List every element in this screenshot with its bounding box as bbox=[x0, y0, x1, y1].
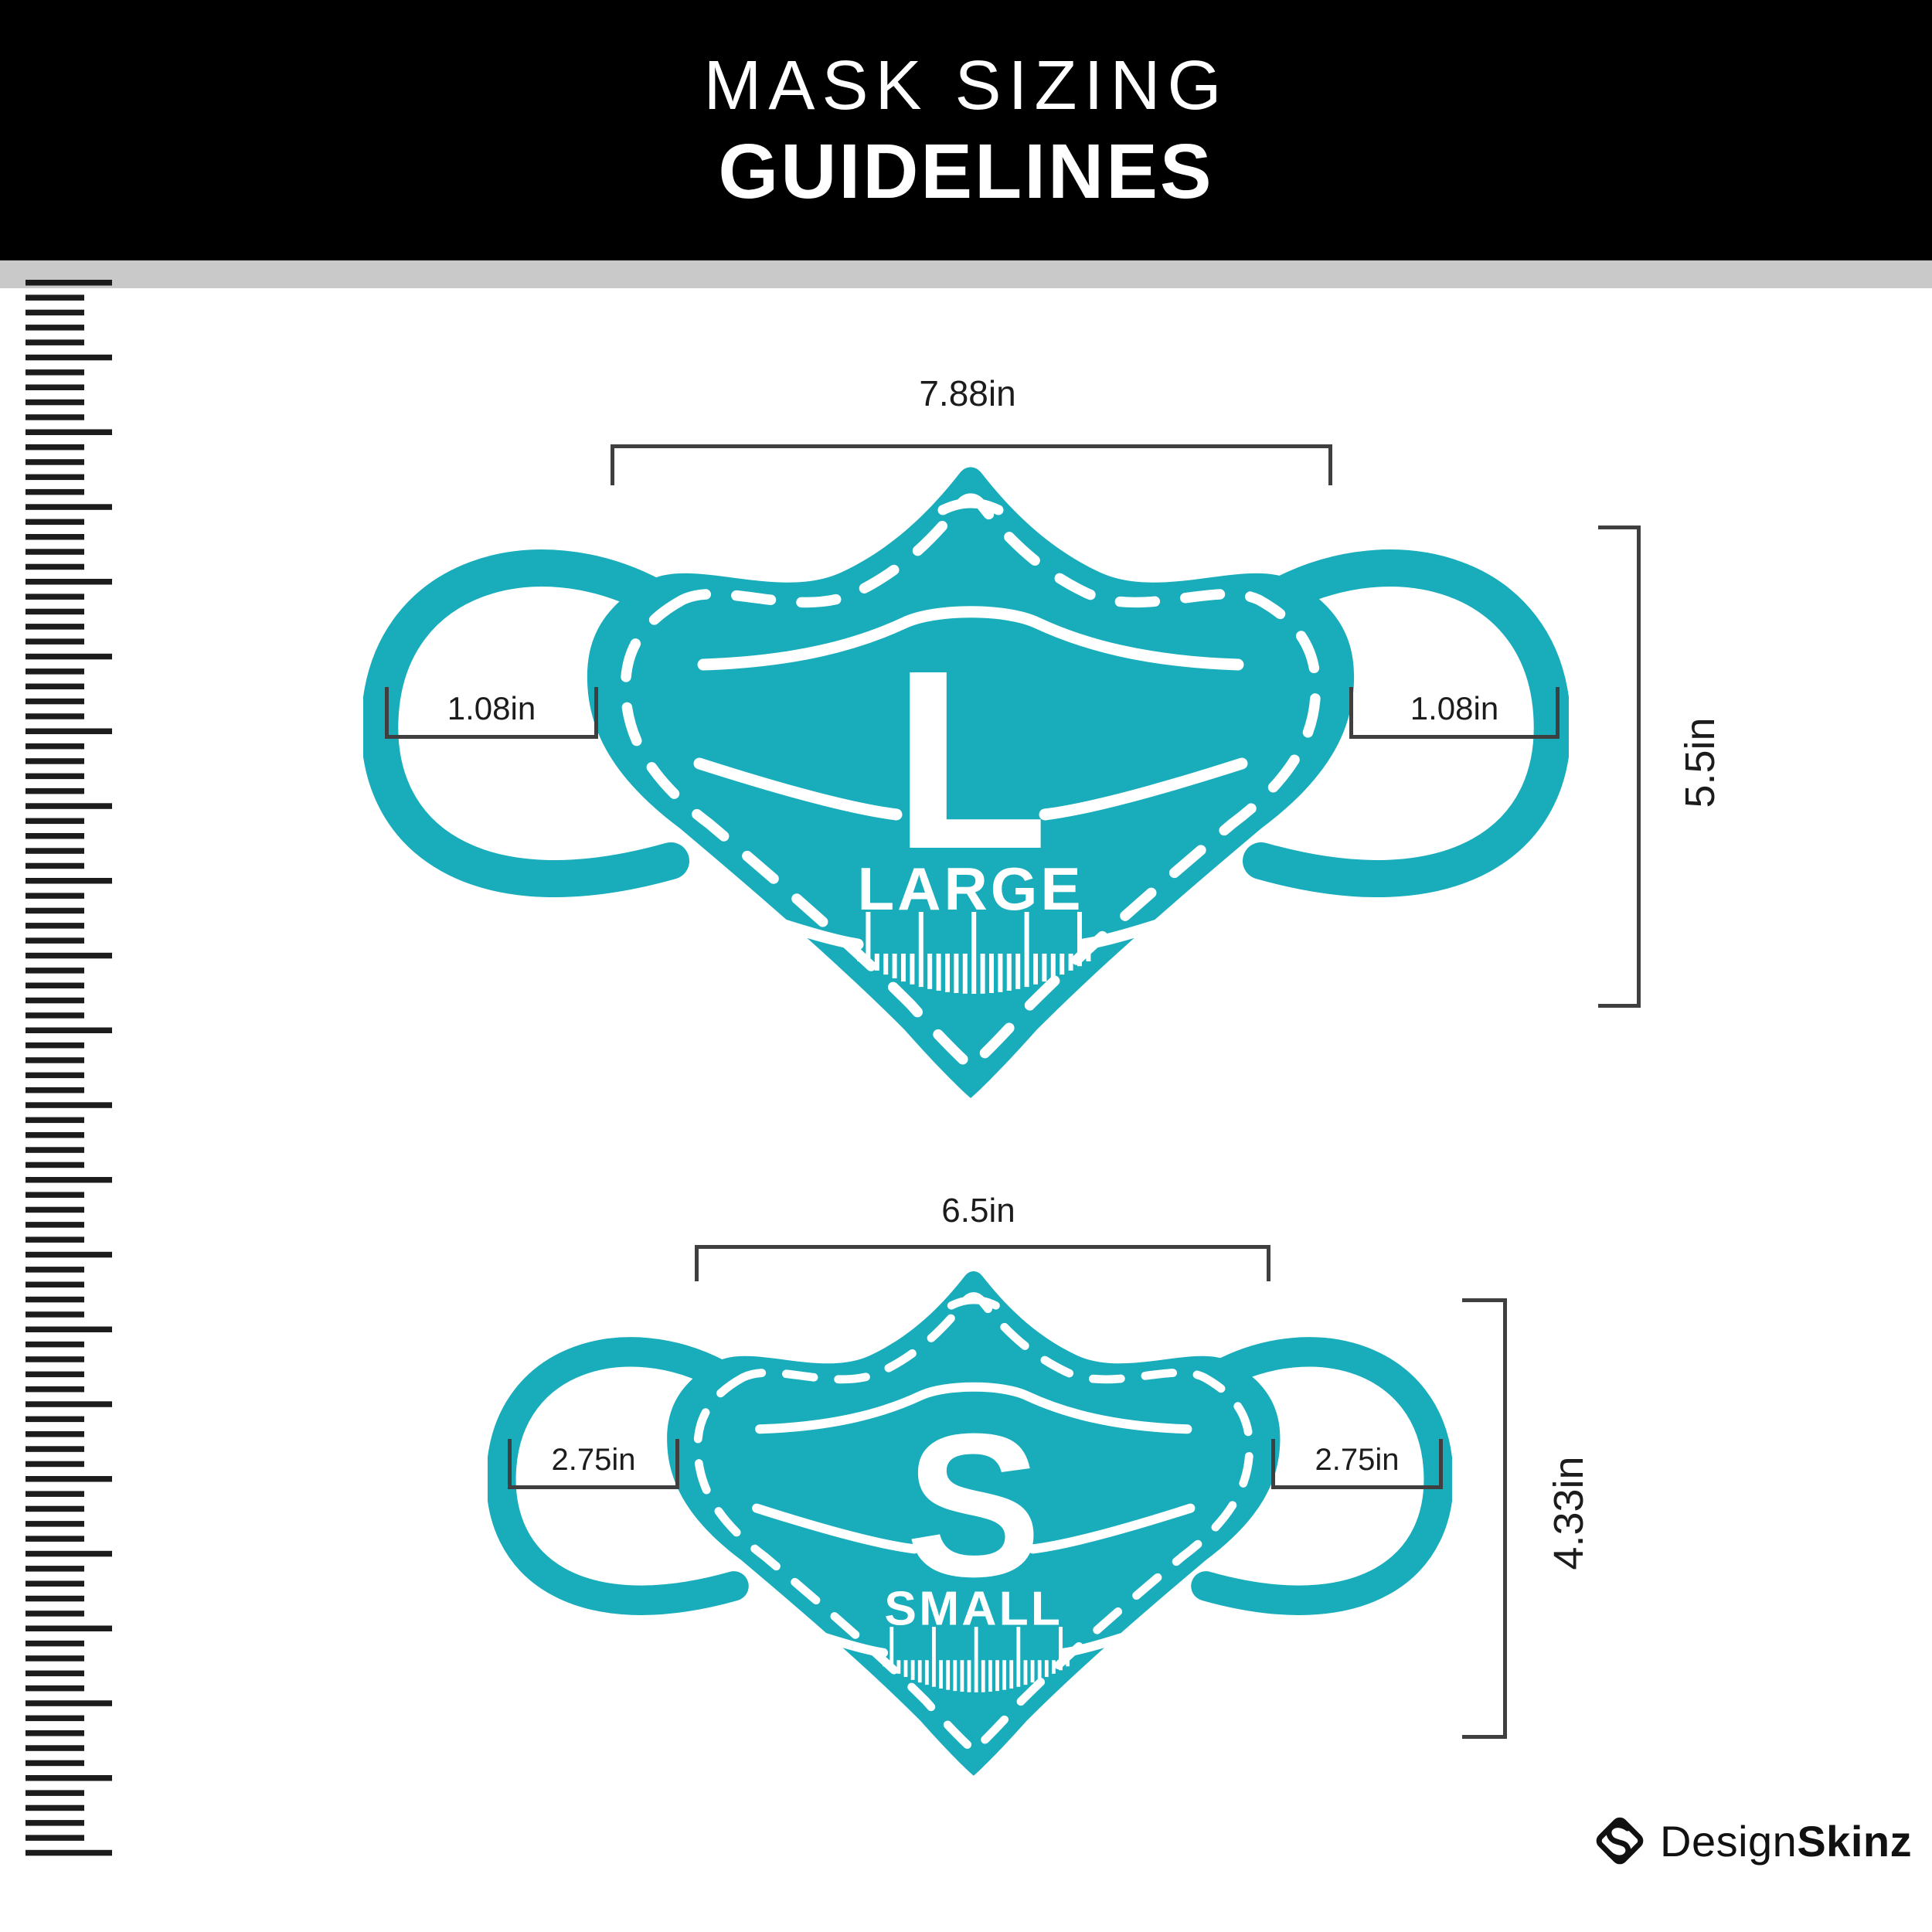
large-ear-right-label: 1.08in bbox=[1410, 690, 1498, 727]
small-ear-right-label: 2.75in bbox=[1315, 1443, 1400, 1478]
large-ear-right-dim: 1.08in bbox=[1349, 687, 1560, 739]
brand-name-bold: Skinz bbox=[1797, 1817, 1912, 1866]
header-banner: MASK SIZING GUIDELINES bbox=[0, 0, 1932, 260]
large-mask: L LARGE bbox=[363, 457, 1569, 1105]
small-ear-left-dim: 2.75in bbox=[508, 1439, 679, 1489]
small-width-label: 6.5in bbox=[824, 1192, 1133, 1230]
brand-logo: DesignSkinz bbox=[1590, 1811, 1912, 1870]
brand-name: DesignSkinz bbox=[1660, 1816, 1912, 1866]
large-ear-left-dim: 1.08in bbox=[385, 687, 598, 739]
side-ruler bbox=[26, 280, 112, 1860]
brand-mark-icon bbox=[1590, 1811, 1649, 1870]
page-title-line2: GUIDELINES bbox=[718, 133, 1213, 210]
page-title-line1: MASK SIZING bbox=[703, 51, 1228, 121]
large-height-label: 5.5in bbox=[1676, 717, 1724, 808]
size-word-small: SMALL bbox=[884, 1583, 1063, 1636]
large-ear-left-label: 1.08in bbox=[447, 690, 536, 727]
infographic-canvas: MASK SIZING GUIDELINES 7.88in L LARGE 1.… bbox=[0, 0, 1932, 1932]
brand-name-regular: Design bbox=[1660, 1817, 1797, 1866]
small-ear-right-dim: 2.75in bbox=[1271, 1439, 1443, 1489]
small-height-label: 4.33in bbox=[1545, 1456, 1593, 1570]
large-height-bracket bbox=[1598, 526, 1641, 1008]
small-ear-left-label: 2.75in bbox=[552, 1443, 636, 1478]
small-height-bracket bbox=[1462, 1298, 1507, 1739]
header-divider-bar bbox=[0, 260, 1932, 288]
large-width-label: 7.88in bbox=[813, 372, 1122, 414]
size-word-large: LARGE bbox=[858, 855, 1084, 923]
small-mask: S SMALL bbox=[488, 1264, 1452, 1781]
